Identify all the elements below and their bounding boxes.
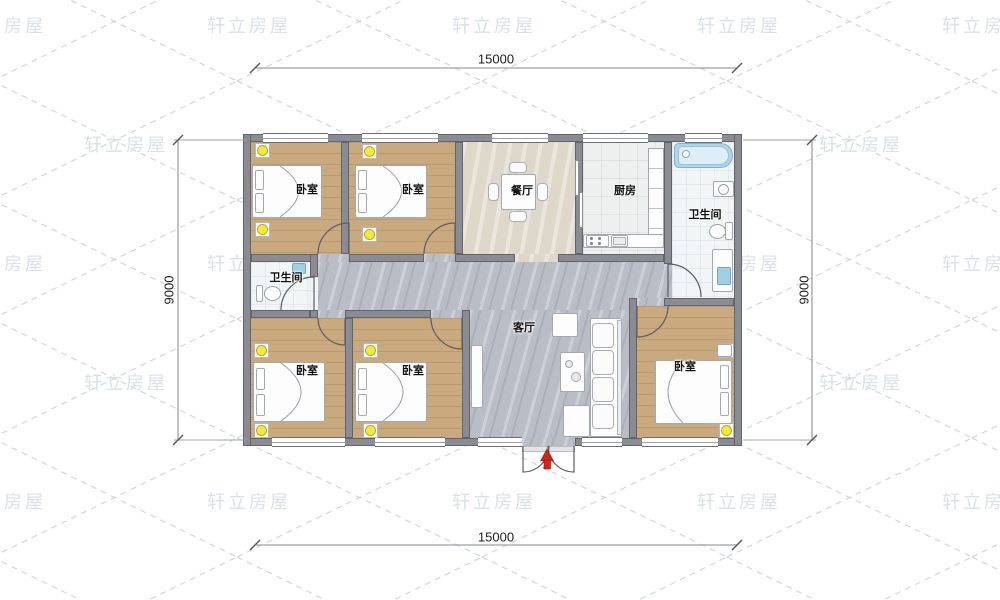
wall-segment [455, 254, 515, 262]
door-opening [664, 264, 672, 298]
wall-segment [734, 134, 742, 446]
ceiling-lamp-symbol [254, 423, 269, 438]
ceiling-lamp-symbol [362, 227, 377, 242]
watermark-text: 轩立房屋 [942, 250, 1000, 276]
sofa-cushion [592, 323, 614, 348]
wall-segment [345, 318, 353, 438]
wall-segment [629, 298, 637, 438]
decor [571, 372, 581, 382]
ceiling-lamp-symbol [363, 343, 378, 358]
chair [488, 183, 499, 201]
side-table [552, 313, 578, 337]
burner [590, 242, 593, 245]
dim-width-top: 15000 [478, 52, 514, 67]
room-label-living: 客厅 [513, 319, 535, 335]
pillow [255, 193, 264, 213]
wall-segment [341, 142, 349, 254]
dining-opening [515, 254, 558, 262]
entry-opening [522, 438, 575, 446]
door-opening [637, 298, 664, 306]
chair [509, 162, 527, 173]
ceiling-lamp-symbol [719, 423, 734, 438]
wall-segment [310, 254, 318, 277]
room-label-bedroom-2: 卧室 [402, 181, 424, 197]
washing-machine [717, 267, 731, 285]
door-opening [431, 310, 462, 318]
wall-segment [251, 254, 318, 262]
room-label-dining: 餐厅 [511, 182, 533, 198]
nightstand [717, 344, 732, 357]
sliding-door-panel [579, 192, 583, 228]
kitchen-counter-right [648, 148, 664, 248]
sofa-cushion [592, 404, 614, 429]
ceiling-lamp-symbol [362, 144, 377, 159]
dim-width-bottom: 15000 [478, 530, 514, 545]
window-symbol [642, 437, 718, 447]
watermark-text: 轩立房屋 [0, 12, 46, 38]
sofa-chaise [563, 405, 590, 437]
floor-plan-canvas: 轩立房屋轩立房屋轩立房屋轩立房屋轩立房屋轩立房屋轩立房屋轩立房屋轩立房屋轩立房屋… [0, 0, 1000, 600]
pillow [256, 394, 265, 416]
chair [509, 211, 527, 222]
window-symbol [685, 133, 722, 143]
wall-segment [345, 310, 431, 318]
pillow [358, 368, 367, 390]
wall-segment [664, 298, 734, 306]
watermark-text: 轩立房屋 [207, 12, 291, 38]
sink-basin [613, 237, 626, 245]
room-label-bedroom-4: 卧室 [402, 362, 424, 378]
toilet-tank [725, 222, 733, 240]
dim-depth-right: 9000 [797, 276, 812, 305]
room-label-bathroom-mid: 卫生间 [270, 269, 303, 285]
watermark-text: 轩立房屋 [84, 131, 168, 157]
wall-segment [455, 142, 463, 254]
dim-depth-left: 9000 [162, 276, 177, 305]
window-symbol [478, 437, 522, 447]
pillow [358, 394, 367, 416]
watermark-text: 轩立房屋 [452, 488, 536, 514]
window-symbol [582, 437, 622, 447]
room-label-bedroom-1: 卧室 [296, 181, 318, 197]
ceiling-lamp-symbol [254, 343, 269, 358]
sofa-cushion [592, 377, 614, 402]
wall-segment [349, 254, 424, 262]
ceiling-lamp-symbol [255, 222, 270, 237]
window-symbol [375, 437, 445, 447]
wall-segment [558, 254, 664, 262]
watermark-text: 轩立房屋 [942, 488, 1000, 514]
tub-drain [682, 150, 690, 158]
toilet-tank [256, 285, 263, 302]
decor [565, 360, 573, 368]
sliding-door-panel [575, 160, 579, 196]
wall-segment [310, 310, 318, 318]
pillow [255, 170, 264, 190]
room-label-bedroom-5: 卧室 [674, 358, 696, 374]
window-symbol [362, 133, 438, 143]
burner [598, 237, 601, 240]
window-symbol [583, 133, 648, 143]
room-label-kitchen: 厨房 [614, 182, 636, 198]
burner [598, 242, 601, 245]
watermark-text: 轩立房屋 [0, 250, 46, 276]
door-opening [318, 254, 349, 262]
room-label-bedroom-3: 卧室 [296, 362, 318, 378]
sofa-back [617, 320, 622, 435]
entry-arrow-icon [541, 449, 554, 469]
pillow [358, 170, 367, 190]
bath-sink [718, 184, 729, 195]
watermark-text: 轩立房屋 [697, 488, 781, 514]
watermark-text: 轩立房屋 [697, 12, 781, 38]
sofa-cushion [592, 350, 614, 375]
burner [590, 237, 593, 240]
wall-segment [251, 310, 310, 318]
watermark-text: 轩立房屋 [84, 369, 168, 395]
wall-segment [462, 310, 470, 438]
watermark-text: 轩立房屋 [819, 131, 903, 157]
wall-segment [664, 142, 672, 264]
window-symbol [272, 437, 345, 447]
watermark-text: 轩立房屋 [819, 369, 903, 395]
pillow [720, 365, 729, 389]
chair [537, 183, 548, 201]
ceiling-lamp-symbol [255, 143, 270, 158]
door-opening [424, 254, 455, 262]
toilet-bowl [264, 286, 281, 301]
toilet-bowl [709, 224, 726, 239]
pillow [358, 193, 367, 213]
ceiling-lamp-symbol [363, 423, 378, 438]
wall-segment [243, 134, 251, 446]
living-floor-upper [318, 262, 664, 310]
tv-cabinet [471, 345, 483, 408]
door-opening [310, 277, 318, 310]
pillow [256, 368, 265, 390]
door-opening [318, 310, 345, 318]
pillow [720, 392, 729, 416]
watermark-text: 轩立房屋 [0, 488, 46, 514]
room-label-bathroom-top: 卫生间 [689, 206, 722, 222]
watermark-text: 轩立房屋 [207, 488, 291, 514]
window-symbol [492, 133, 548, 143]
window-symbol [263, 133, 328, 143]
entry-threshold [522, 446, 575, 452]
watermark-text: 轩立房屋 [452, 12, 536, 38]
watermark-text: 轩立房屋 [942, 12, 1000, 38]
